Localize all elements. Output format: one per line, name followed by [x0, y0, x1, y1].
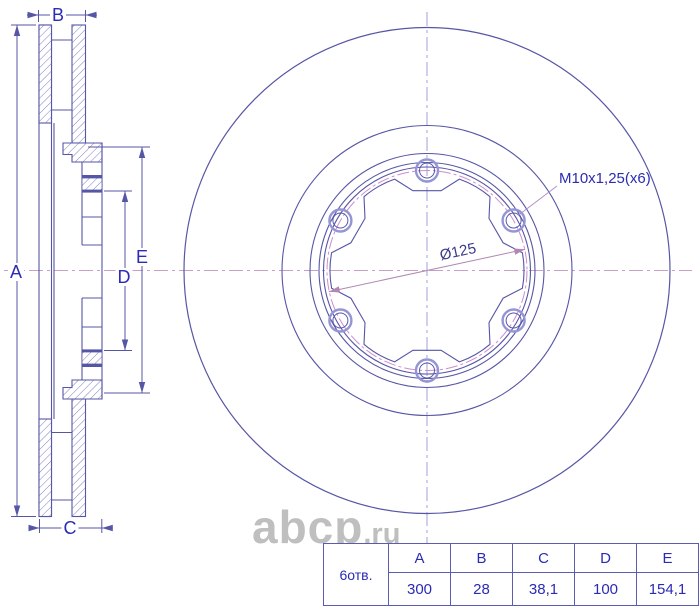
spec-value-D: 100: [575, 573, 637, 606]
hat-shoulder-top: [63, 143, 102, 162]
spec-row-label: 6отв.: [324, 544, 389, 606]
spec-col-header-A: A: [389, 544, 451, 573]
spec-value-B: 28: [451, 573, 513, 606]
dim-label-A: A: [8, 263, 24, 281]
spec-table: 6отв. A B C D E 300 28 38,1 100 154,1: [323, 543, 699, 606]
spec-col-header-B: B: [451, 544, 513, 573]
outboard-plate-hatch-bottom: [39, 419, 52, 517]
centerlines: [4, 12, 692, 551]
dim-label-D: D: [116, 268, 133, 286]
dim-label-B: B: [50, 6, 66, 24]
bolt-hole-hatch: [82, 352, 102, 364]
bore-edge-band: [82, 190, 102, 193]
thread-callout: M10x1,25(x6): [559, 171, 651, 186]
spec-col-header-C: C: [513, 544, 575, 573]
spec-col-header-E: E: [637, 544, 699, 573]
spec-value-A: 300: [389, 573, 451, 606]
dim-label-C: C: [62, 519, 79, 537]
inboard-plate-hatch-bottom: [72, 399, 86, 517]
bolt-hole-band: [82, 175, 102, 178]
technical-drawing-page: A B C D E M10x1,25(x6) Ø125 abcp.ru 6отв…: [0, 0, 700, 609]
bolt-hole-band: [82, 364, 102, 367]
spec-table-header-row: 6отв. A B C D E: [324, 544, 699, 573]
spec-value-C: 38,1: [513, 573, 575, 606]
dim-label-E: E: [134, 248, 150, 266]
spec-col-header-D: D: [575, 544, 637, 573]
thread-callout-leader: [518, 186, 557, 216]
spec-value-E: 154,1: [637, 573, 699, 606]
inboard-plate-hatch-top: [72, 25, 86, 143]
hat-shoulder-bottom: [63, 380, 102, 399]
outboard-plate-hatch-top: [39, 25, 52, 123]
bolt-hole-hatch: [82, 178, 102, 190]
